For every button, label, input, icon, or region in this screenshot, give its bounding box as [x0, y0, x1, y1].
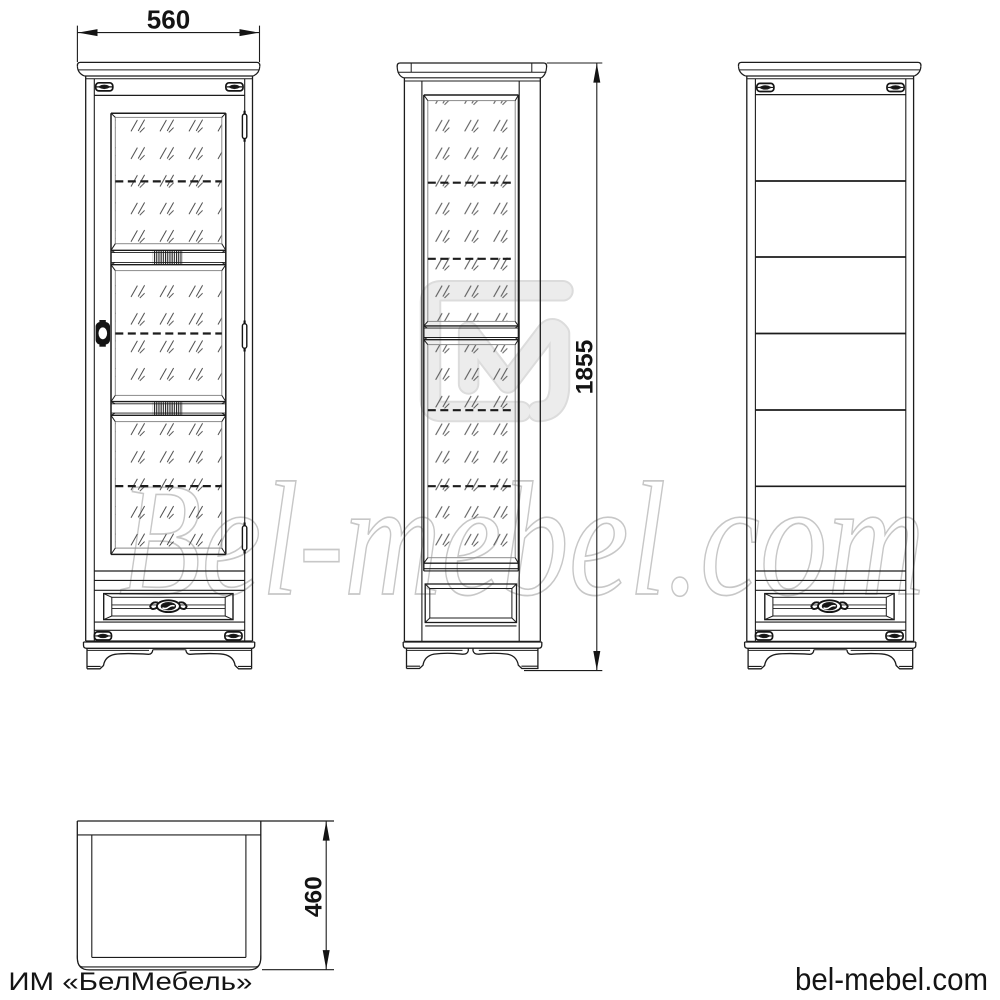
svg-text:bel-mebel.com: bel-mebel.com: [795, 961, 988, 997]
svg-text:560: 560: [147, 5, 190, 35]
svg-text:460: 460: [301, 876, 328, 917]
svg-text:Bel-mebel.com: Bel-mebel.com: [119, 450, 925, 630]
svg-text:1855: 1855: [572, 340, 599, 395]
svg-text:ИМ «БелМебель»: ИМ «БелМебель»: [8, 968, 252, 996]
